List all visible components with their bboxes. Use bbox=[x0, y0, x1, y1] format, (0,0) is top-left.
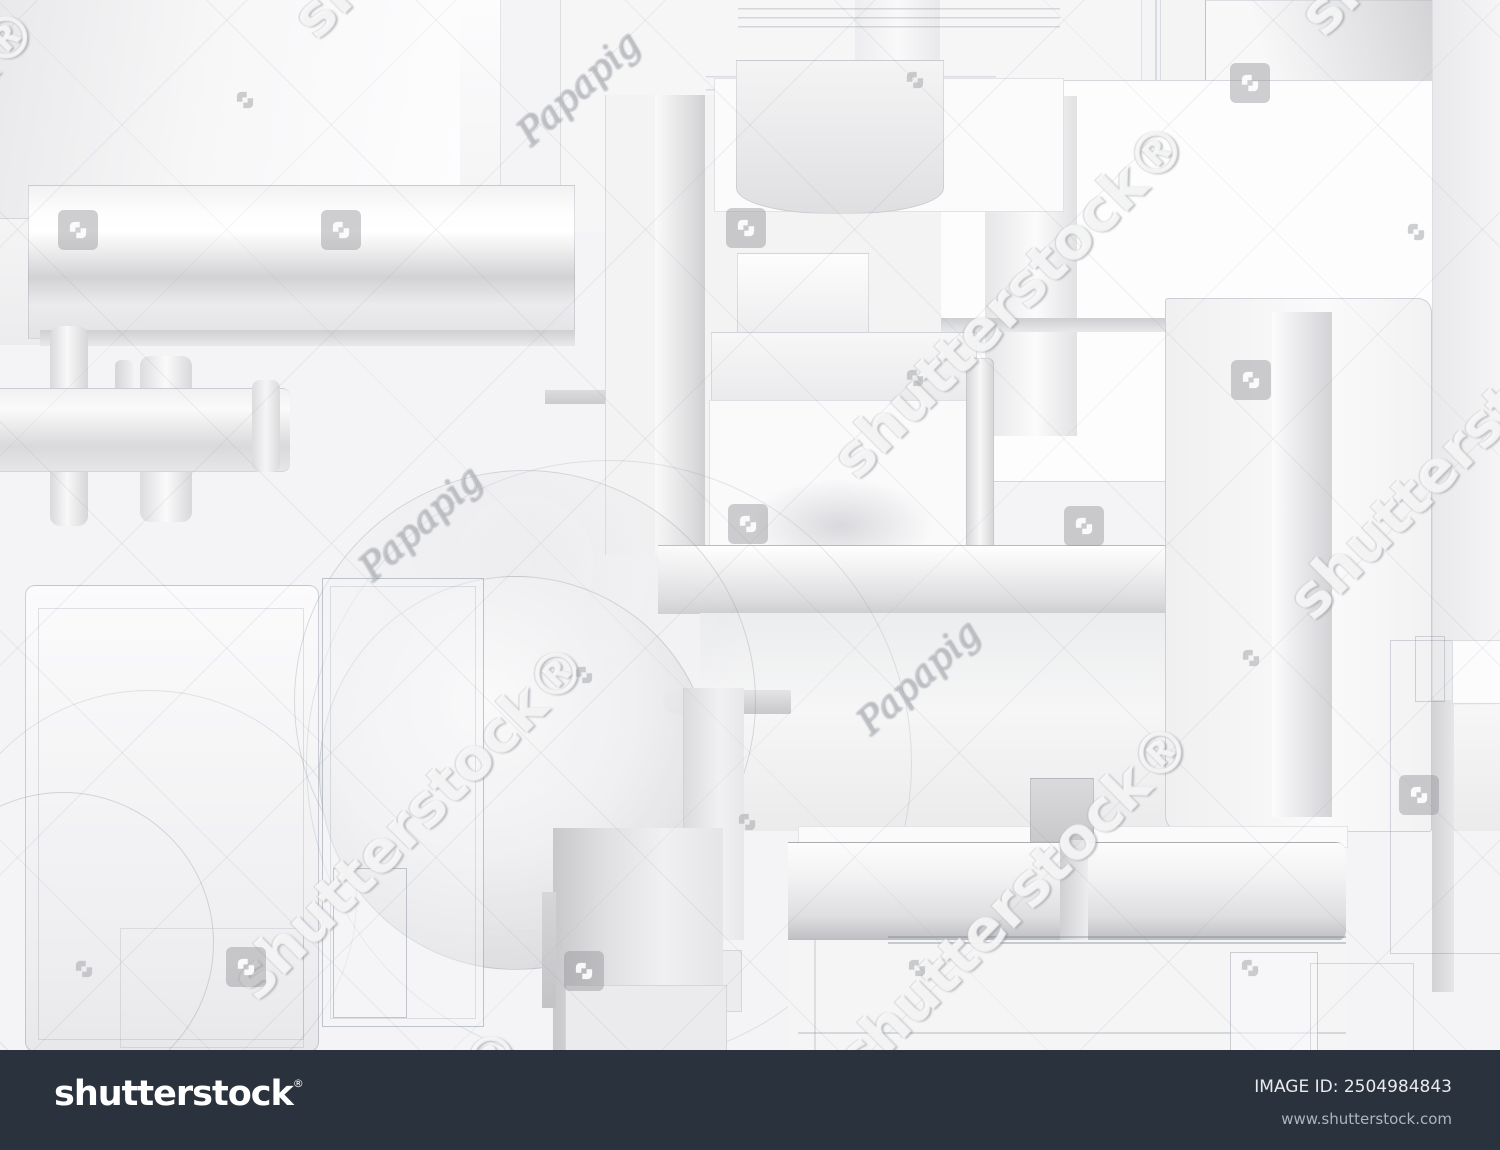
small-rect-right-a bbox=[1415, 636, 1445, 702]
vertical-rod-c bbox=[252, 380, 280, 472]
outline-rect-bottom-right-a bbox=[1230, 952, 1318, 1050]
gray-subpanel-bottom-center bbox=[565, 985, 727, 1050]
shutterstock-logo: shutterstock® bbox=[54, 1074, 304, 1114]
thin-lines-top bbox=[738, 8, 1060, 35]
image-id: IMAGE ID: 2504984843 bbox=[1254, 1077, 1452, 1097]
horizontal-bar-left bbox=[0, 388, 290, 472]
thin-lines-bottom-right bbox=[888, 936, 1346, 946]
dark-square-bottom-right bbox=[1030, 778, 1094, 842]
registered-mark: ® bbox=[293, 1077, 304, 1090]
shutterstock-footer-bar: shutterstock® IMAGE ID: 2504984843 www.s… bbox=[0, 1050, 1500, 1150]
outline-rect-bottom-right-b bbox=[1310, 963, 1414, 1050]
small-cylinder-center bbox=[736, 60, 944, 214]
thin-vline-bottom-right bbox=[814, 940, 816, 1050]
website-url: www.shutterstock.com bbox=[1281, 1110, 1452, 1128]
stock-photo-preview: shutterstock®shutterstock®shutterstock®s… bbox=[0, 0, 1500, 1150]
cylinder-band-right bbox=[1272, 312, 1332, 817]
cylinder-strip-top-left bbox=[40, 330, 575, 346]
tall-glass-rect-inset bbox=[333, 868, 407, 1018]
horizontal-cylinder-top-left bbox=[28, 185, 575, 339]
abstract-3d-artwork bbox=[0, 0, 1500, 1050]
small-rect-right-b bbox=[1452, 640, 1500, 704]
shutterstock-logo-text: shutterstock bbox=[54, 1074, 293, 1114]
gray-notch-bottom-center bbox=[542, 892, 556, 1008]
mini-bar-center-left bbox=[545, 390, 607, 404]
thin-pillar-center bbox=[966, 358, 994, 558]
edge-band-right bbox=[1432, 0, 1500, 705]
